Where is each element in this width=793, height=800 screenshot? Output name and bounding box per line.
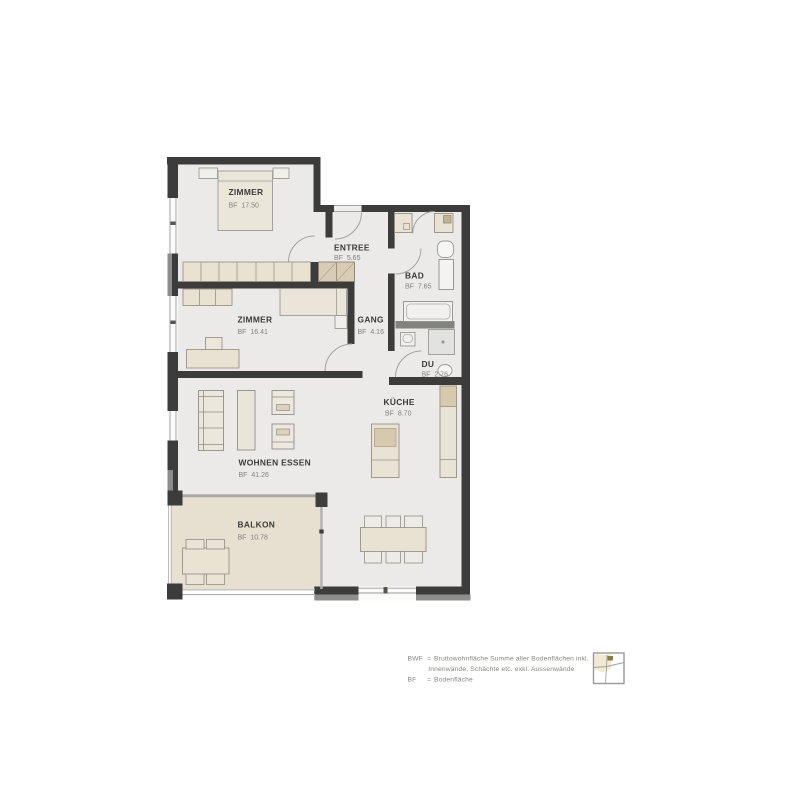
svg-text:ZIMMER: ZIMMER: [229, 187, 264, 197]
svg-text:GANG: GANG: [358, 315, 384, 325]
svg-text:BF 41.26: BF 41.26: [239, 472, 269, 479]
svg-text:ENTREE: ENTREE: [334, 243, 370, 253]
svg-text:Bruttowohnfläche Summe aller B: Bruttowohnfläche Summe aller Bodenfläche…: [434, 655, 589, 662]
svg-text:ZIMMER: ZIMMER: [238, 315, 273, 325]
svg-text:BF 2.76: BF 2.76: [422, 372, 449, 379]
svg-text:BF 17.50: BF 17.50: [229, 203, 259, 210]
svg-text:BF 4.16: BF 4.16: [358, 329, 385, 336]
svg-text:KÜCHE: KÜCHE: [384, 397, 415, 407]
svg-text:BAD: BAD: [405, 271, 424, 281]
svg-text:BF 5.65: BF 5.65: [334, 255, 361, 262]
svg-text:BWF: BWF: [408, 655, 423, 662]
svg-text:=: =: [427, 655, 431, 662]
svg-text:=: =: [427, 677, 431, 684]
svg-text:DU: DU: [422, 359, 435, 369]
svg-text:BF 16.41: BF 16.41: [238, 329, 268, 336]
svg-text:WOHNEN ESSEN: WOHNEN ESSEN: [239, 458, 311, 468]
svg-text:BF 10.78: BF 10.78: [238, 535, 268, 542]
svg-text:Innenwände, Schächte etc. exkl: Innenwände, Schächte etc. exkl. Aussenwä…: [428, 666, 574, 673]
svg-text:BALKON: BALKON: [238, 520, 276, 530]
svg-text:Bodenfläche: Bodenfläche: [434, 677, 473, 684]
svg-text:BF: BF: [408, 677, 417, 684]
svg-text:BF 8.70: BF 8.70: [385, 411, 412, 418]
svg-text:BF 7.65: BF 7.65: [405, 284, 432, 291]
